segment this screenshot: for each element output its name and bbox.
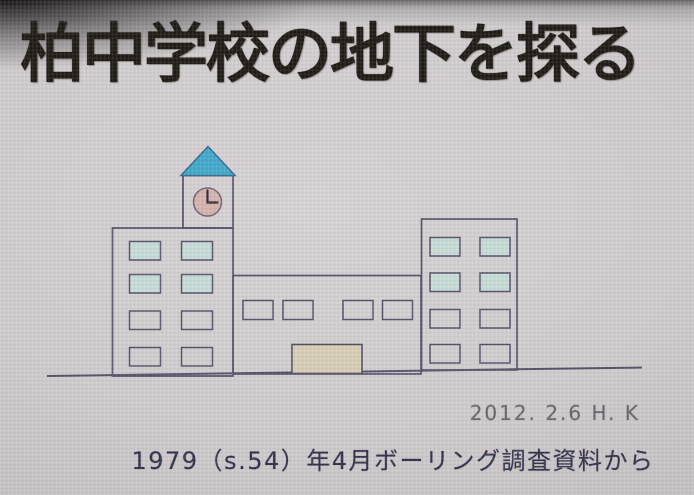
right-wing [422,219,518,370]
middle-wing [233,276,421,375]
projected-slide-photo: 柏中学校の地下を探る [0,0,694,495]
credit-text: 2012. 2.6 H. K [470,401,640,425]
middle-wing-windows [243,301,413,320]
tower-roof [181,147,235,176]
clock-icon [194,188,222,216]
entrance-door [292,345,362,374]
left-wing [113,147,236,377]
left-wing-windows [130,242,213,367]
right-wing-windows [430,238,510,364]
source-caption: 1979（s.54）年4月ボーリング調査資料から [92,441,694,476]
